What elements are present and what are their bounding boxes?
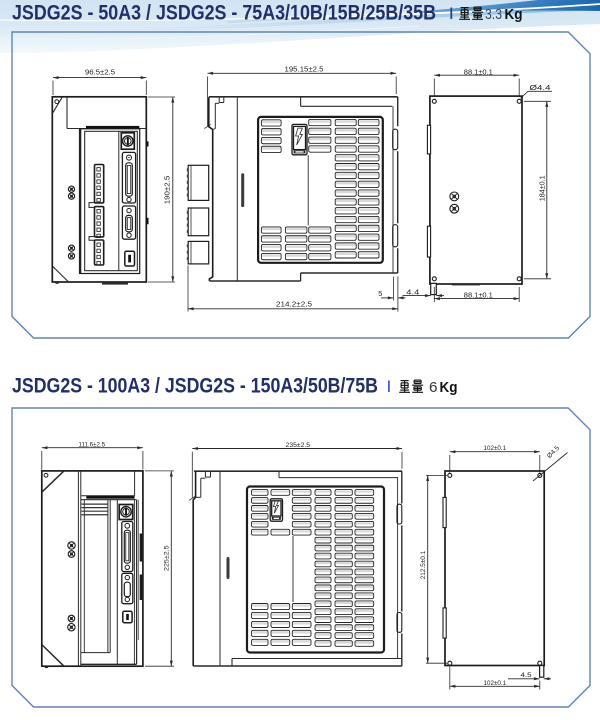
svg-text:214.2±2.5: 214.2±2.5 [276, 300, 312, 309]
svg-text:111.6±2.5: 111.6±2.5 [79, 442, 106, 449]
svg-text:JSDG2S - 100A3 / JSDG2S - 150A: JSDG2S - 100A3 / JSDG2S - 150A3/50B/75B [12, 375, 378, 398]
svg-text:3.3: 3.3 [485, 6, 502, 23]
svg-text:184±0.1: 184±0.1 [537, 175, 546, 201]
svg-text:Ø4.4: Ø4.4 [530, 83, 551, 92]
svg-text:102±0.1: 102±0.1 [484, 445, 507, 452]
svg-text:6: 6 [429, 379, 438, 396]
svg-text:190±2.5: 190±2.5 [163, 176, 172, 205]
svg-text:212.5±0.1: 212.5±0.1 [420, 550, 427, 579]
svg-text:Kg: Kg [505, 6, 523, 23]
svg-text:195.15±2.5: 195.15±2.5 [285, 65, 324, 74]
svg-text:235±2.5: 235±2.5 [286, 442, 311, 449]
svg-text:JSDG2S - 50A3 / JSDG2S - 75A3/: JSDG2S - 50A3 / JSDG2S - 75A3/10B/15B/25… [12, 2, 436, 25]
svg-text:4.5: 4.5 [521, 672, 532, 679]
svg-text:5: 5 [378, 289, 382, 298]
svg-text:88.1±0.1: 88.1±0.1 [464, 67, 493, 76]
svg-text:88.1±0.1: 88.1±0.1 [464, 291, 493, 300]
svg-text:Kg: Kg [440, 379, 458, 396]
svg-text:96.5±2.5: 96.5±2.5 [85, 68, 115, 77]
svg-text:102±0.1: 102±0.1 [484, 680, 507, 687]
svg-text:225±2.5: 225±2.5 [163, 545, 170, 571]
